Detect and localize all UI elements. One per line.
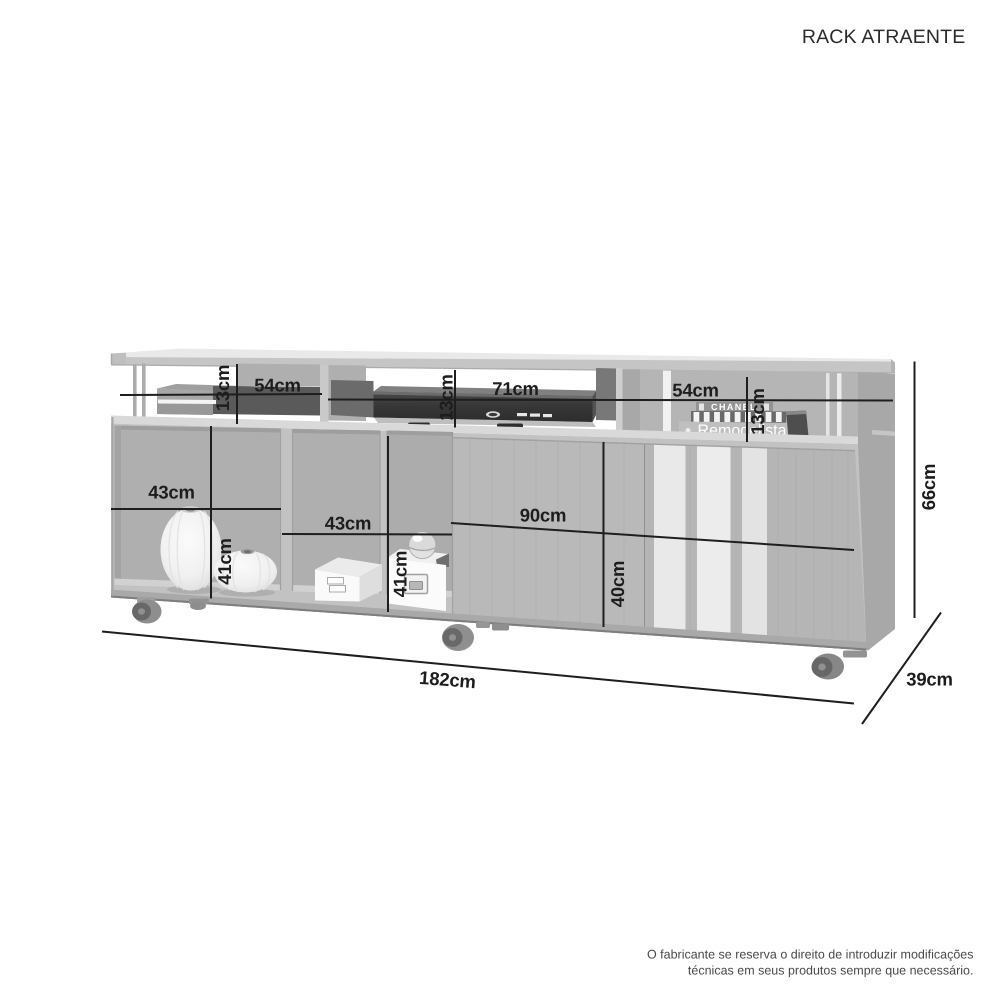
svg-text:182cm: 182cm (418, 667, 476, 692)
svg-text:43cm: 43cm (148, 482, 195, 503)
svg-text:66cm: 66cm (918, 464, 939, 511)
svg-text:13cm: 13cm (747, 388, 768, 435)
svg-text:90cm: 90cm (520, 505, 567, 526)
svg-text:71cm: 71cm (492, 378, 539, 399)
svg-text:43cm: 43cm (325, 513, 372, 534)
svg-text:54cm: 54cm (672, 380, 719, 401)
svg-text:41cm: 41cm (390, 551, 411, 598)
svg-text:13cm: 13cm (212, 365, 233, 412)
svg-text:13cm: 13cm (436, 374, 457, 421)
svg-text:O fabricante se reserva o dire: O fabricante se reserva o direito de int… (647, 948, 974, 962)
svg-text:39cm: 39cm (906, 669, 953, 690)
svg-text:RACK ATRAENTE: RACK ATRAENTE (802, 26, 966, 48)
svg-text:54cm: 54cm (254, 375, 301, 396)
svg-text:41cm: 41cm (214, 538, 235, 585)
svg-text:40cm: 40cm (607, 561, 628, 608)
svg-text:técnicas em seus produtos semp: técnicas em seus produtos sempre que nec… (688, 964, 974, 978)
